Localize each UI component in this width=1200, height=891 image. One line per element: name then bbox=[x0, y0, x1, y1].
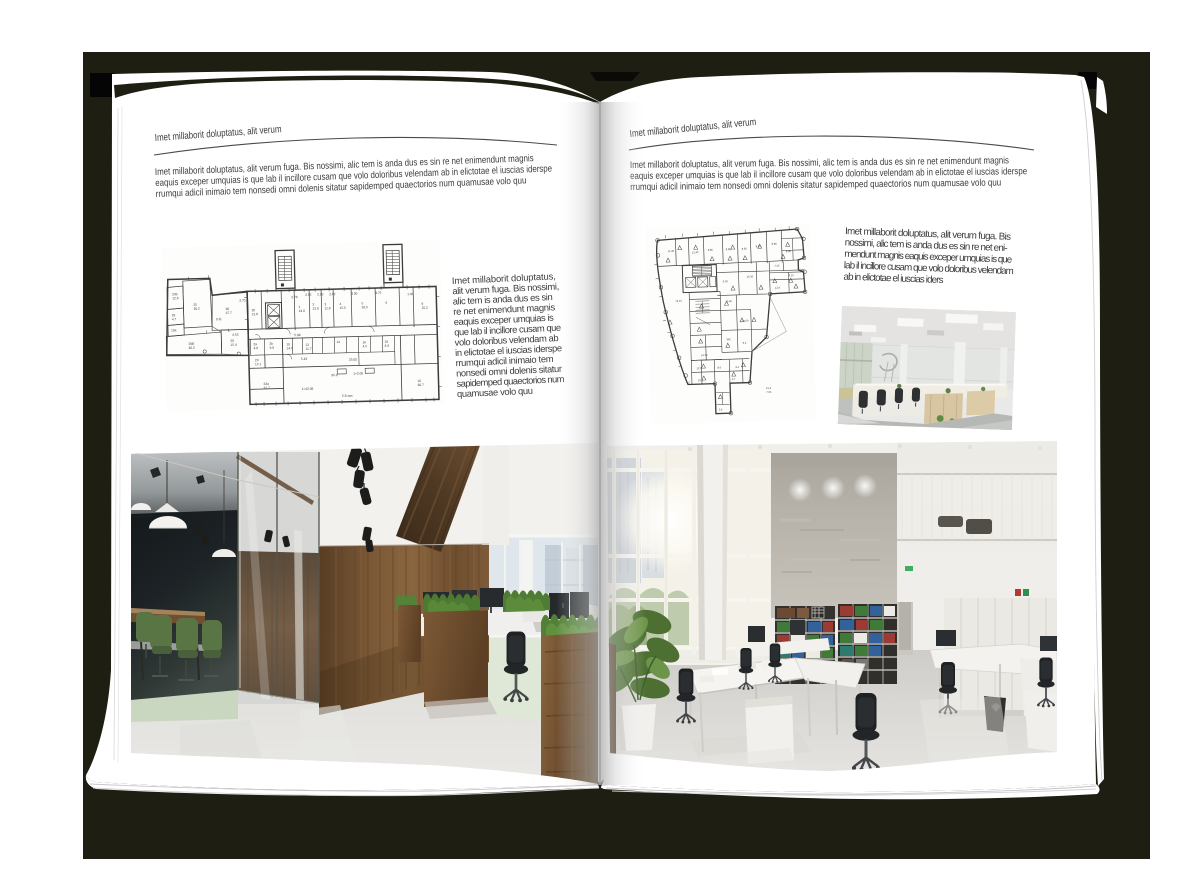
svg-text:11.8: 11.8 bbox=[325, 306, 331, 310]
svg-text:7.05: 7.05 bbox=[766, 390, 772, 394]
svg-text:5.43: 5.43 bbox=[301, 357, 308, 361]
svg-text:8.85: 8.85 bbox=[756, 244, 762, 248]
svg-text:8.85: 8.85 bbox=[708, 248, 714, 252]
svg-text:8.80: 8.80 bbox=[772, 242, 778, 246]
svg-text:4.7: 4.7 bbox=[172, 317, 177, 321]
svg-text:12.8: 12.8 bbox=[313, 306, 320, 310]
svg-text:10.1: 10.1 bbox=[698, 378, 704, 382]
svg-text:2-й зал: 2-й зал bbox=[342, 394, 353, 398]
svg-text:2.90: 2.90 bbox=[317, 292, 324, 296]
svg-text:13.8: 13.8 bbox=[299, 309, 306, 313]
svg-text:9.95: 9.95 bbox=[723, 279, 729, 283]
svg-text:4.9: 4.9 bbox=[385, 344, 390, 348]
svg-text:74.15: 74.15 bbox=[675, 299, 682, 303]
svg-text:12.6: 12.6 bbox=[172, 296, 179, 300]
svg-text:25.00: 25.00 bbox=[349, 358, 357, 362]
svg-text:6: 6 bbox=[385, 301, 387, 305]
svg-text:3.11: 3.11 bbox=[216, 317, 222, 321]
svg-text:14.5: 14.5 bbox=[287, 346, 294, 350]
svg-text:5.98: 5.98 bbox=[294, 333, 301, 337]
svg-text:16.30: 16.30 bbox=[747, 274, 754, 278]
svg-text:12.40: 12.40 bbox=[692, 250, 699, 254]
svg-text:WC: WC bbox=[727, 337, 732, 341]
svg-text:9.8: 9.8 bbox=[270, 346, 275, 350]
svg-text:11.95: 11.95 bbox=[668, 249, 675, 253]
svg-text:4.55: 4.55 bbox=[232, 333, 239, 337]
svg-text:1=2.00: 1=2.00 bbox=[353, 371, 363, 375]
svg-text:12.1: 12.1 bbox=[255, 362, 262, 366]
svg-text:2.95: 2.95 bbox=[305, 293, 312, 297]
svg-text:3.75: 3.75 bbox=[375, 291, 382, 295]
svg-text:15.5: 15.5 bbox=[340, 306, 347, 310]
svg-text:30.7: 30.7 bbox=[418, 383, 425, 387]
svg-text:20.5: 20.5 bbox=[362, 305, 369, 309]
svg-text:12.2: 12.2 bbox=[696, 366, 702, 370]
svg-text:10.2: 10.2 bbox=[422, 306, 429, 310]
svg-text:8.15: 8.15 bbox=[789, 273, 795, 277]
svg-text:4.5: 4.5 bbox=[363, 344, 368, 348]
svg-text:15.60: 15.60 bbox=[725, 299, 732, 303]
svg-text:13a: 13a bbox=[171, 328, 177, 332]
svg-text:8.85: 8.85 bbox=[742, 247, 748, 251]
svg-text:4.8: 4.8 bbox=[254, 346, 259, 350]
svg-text:31.7: 31.7 bbox=[264, 386, 271, 390]
svg-text:1=42.08: 1=42.08 bbox=[302, 387, 314, 391]
svg-text:15.4: 15.4 bbox=[230, 343, 237, 347]
svg-text:11.7: 11.7 bbox=[306, 347, 312, 351]
svg-text:21.60: 21.60 bbox=[742, 319, 749, 323]
svg-text:3.00: 3.00 bbox=[351, 291, 358, 295]
svg-text:15.4: 15.4 bbox=[766, 386, 772, 390]
svg-text:14.95: 14.95 bbox=[701, 353, 708, 357]
svg-text:1.45: 1.45 bbox=[407, 292, 414, 296]
svg-text:40.2: 40.2 bbox=[189, 346, 196, 350]
svg-text:2.92: 2.92 bbox=[329, 292, 336, 296]
svg-text:8.85: 8.85 bbox=[726, 247, 732, 251]
svg-text:21.8: 21.8 bbox=[252, 312, 259, 316]
svg-text:37.7: 37.7 bbox=[226, 311, 233, 315]
svg-text:8.00: 8.00 bbox=[786, 249, 792, 253]
svg-text:12.9: 12.9 bbox=[775, 286, 781, 290]
svg-text:2.70: 2.70 bbox=[239, 298, 246, 302]
svg-text:2.78: 2.78 bbox=[291, 295, 298, 299]
svg-text:95.3: 95.3 bbox=[331, 373, 338, 377]
svg-text:14: 14 bbox=[336, 340, 340, 344]
svg-text:30.2: 30.2 bbox=[193, 307, 200, 311]
svg-text:7.45: 7.45 bbox=[774, 264, 780, 268]
